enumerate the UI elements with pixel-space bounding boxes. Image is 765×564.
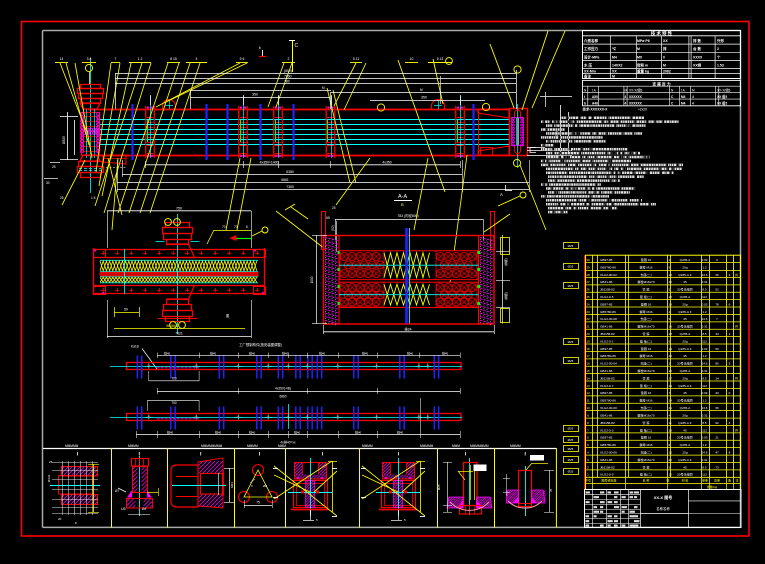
svg-text:Ø25: Ø25 xyxy=(568,447,574,451)
svg-text:18: 18 xyxy=(586,347,590,351)
svg-text:Ø325: Ø325 xyxy=(62,136,66,144)
svg-text:MMM: MMM xyxy=(278,444,286,448)
svg-text:螺栓M16x70: 螺栓M16x70 xyxy=(637,457,654,462)
svg-text:Kat.B: Kat.B xyxy=(131,345,139,349)
svg-text:20号无缝管: 20号无缝管 xyxy=(677,435,693,440)
svg-text:工作压力: 工作压力 xyxy=(584,46,598,51)
svg-text:图号或标准: 图号或标准 xyxy=(601,478,616,483)
svg-text:21: 21 xyxy=(669,406,673,410)
svg-text:管 箍: 管 箍 xyxy=(642,331,649,336)
svg-text:GB97-85: GB97-85 xyxy=(600,436,613,440)
svg-text:MMMMMMM: MMMMMMM xyxy=(470,444,489,448)
svg-text:垫 板(二): 垫 板(二) xyxy=(640,338,652,343)
svg-text:JB1158-82: JB1158-82 xyxy=(600,421,615,425)
svg-text:MPa·P6: MPa·P6 xyxy=(637,39,650,43)
svg-text:XLG2-00-04: XLG2-00-04 xyxy=(600,362,617,366)
svg-text:GB5780-86: GB5780-86 xyxy=(600,399,616,403)
svg-text:XLG2-0-5: XLG2-0-5 xyxy=(600,295,614,299)
svg-text:21: 21 xyxy=(715,436,719,440)
svg-text:Q235-A.F: Q235-A.F xyxy=(678,273,692,277)
svg-text:A50: A50 xyxy=(592,95,598,99)
svg-text:管 箍: 管 箍 xyxy=(642,287,649,292)
svg-text:JB1158-82: JB1158-82 xyxy=(600,465,615,469)
svg-text:XX 组5: XX 组5 xyxy=(717,101,727,106)
svg-text:螺栓M16x70: 螺栓M16x70 xyxy=(637,368,654,373)
svg-text:容积 m: 容积 m xyxy=(636,63,648,68)
svg-text:4: 4 xyxy=(625,102,627,106)
svg-text:Q235-A.F: Q235-A.F xyxy=(678,421,692,425)
svg-text:(650): (650) xyxy=(284,69,292,73)
svg-text:13: 13 xyxy=(669,347,673,351)
svg-text:6 13: 6 13 xyxy=(437,57,444,61)
svg-text:XLG2-00-08: XLG2-00-08 xyxy=(600,317,617,321)
svg-text:C: C xyxy=(295,43,299,49)
svg-text:垫圈 16: 垫圈 16 xyxy=(641,390,652,395)
svg-text:Ø25: Ø25 xyxy=(568,340,574,344)
svg-text:70: 70 xyxy=(222,225,226,229)
svg-text:GB41-86: GB41-86 xyxy=(600,458,613,462)
svg-text:Ø25: Ø25 xyxy=(568,265,574,269)
svg-text:25: 25 xyxy=(332,206,336,210)
svg-text:支座(二): 支座(二) xyxy=(640,316,651,321)
svg-text:24.6: 24.6 xyxy=(702,273,708,277)
svg-text:XX·X/组5: XX·X/组5 xyxy=(717,88,731,93)
svg-text:17: 17 xyxy=(586,354,590,358)
svg-text:支座(二): 支座(二) xyxy=(640,405,651,410)
svg-text:螺栓M16x70: 螺栓M16x70 xyxy=(637,279,654,284)
svg-text:M: M xyxy=(612,75,615,79)
svg-text:45: 45 xyxy=(683,428,687,432)
svg-text:MMM: MMM xyxy=(452,444,460,448)
svg-text:78: 78 xyxy=(715,302,719,306)
svg-text:件号: 件号 xyxy=(585,478,591,483)
svg-text:(排距): (排距) xyxy=(503,258,508,266)
svg-text:0.31: 0.31 xyxy=(702,369,708,373)
svg-text:Q235-A.F: Q235-A.F xyxy=(678,347,692,351)
svg-text:8.5: 8.5 xyxy=(702,376,707,380)
svg-text:JB1158-82: JB1158-82 xyxy=(600,288,615,292)
svg-text:GB5780-86: GB5780-86 xyxy=(600,310,616,314)
svg-text:M: M xyxy=(420,88,423,92)
svg-text:垫圈 16: 垫圈 16 xyxy=(641,435,652,440)
svg-text:1.2: 1.2 xyxy=(702,399,707,403)
svg-text:26: 26 xyxy=(715,273,719,277)
svg-text:垫圈 16: 垫圈 16 xyxy=(641,257,652,262)
svg-text:单重: 单重 xyxy=(702,478,708,483)
svg-text:112: 112 xyxy=(702,428,707,432)
svg-text:XX 组5: XX 组5 xyxy=(717,94,727,99)
svg-text:M4: M4 xyxy=(612,55,617,59)
svg-text:外形: 外形 xyxy=(717,38,725,43)
svg-text:10: 10 xyxy=(410,57,414,61)
svg-text:21: 21 xyxy=(586,325,590,329)
svg-text:Q235-A: Q235-A xyxy=(680,295,692,299)
svg-text:24: 24 xyxy=(586,302,590,306)
svg-text:MMMM: MMMM xyxy=(362,444,373,448)
svg-text:0.31: 0.31 xyxy=(702,458,708,462)
svg-text:垫圈 16: 垫圈 16 xyxy=(641,301,652,306)
svg-text:22: 22 xyxy=(669,458,673,462)
svg-text:M: M xyxy=(692,89,695,93)
svg-text:XXXXXX: XXXXXX xyxy=(629,95,643,99)
svg-text:Ø25: Ø25 xyxy=(568,458,574,462)
svg-text:XLG2-00-06: XLG2-00-06 xyxy=(600,450,617,454)
svg-text:XLG2-00-00: XLG2-00-00 xyxy=(600,406,617,410)
svg-text:20g: 20g xyxy=(682,302,687,306)
svg-text:1.2: 1.2 xyxy=(702,310,707,314)
svg-text:MMMMMMMM: MMMMMMMM xyxy=(201,444,223,448)
svg-text:350: 350 xyxy=(421,96,427,100)
svg-text:24.6: 24.6 xyxy=(702,362,708,366)
svg-text:15: 15 xyxy=(669,450,673,454)
svg-text:1: 1 xyxy=(669,436,671,440)
svg-text:个: 个 xyxy=(716,54,721,59)
svg-text:112: 112 xyxy=(702,339,707,343)
svg-text:XLG2-0-9: XLG2-0-9 xyxy=(600,473,614,477)
svg-text:10: 10 xyxy=(586,406,590,410)
svg-text:支座(二): 支座(二) xyxy=(640,272,651,277)
svg-text:7: 7 xyxy=(115,57,117,61)
svg-text:45: 45 xyxy=(683,465,687,469)
svg-text:9 6: 9 6 xyxy=(240,57,245,61)
svg-text:750: 750 xyxy=(176,206,182,210)
svg-text:数: 数 xyxy=(666,478,669,483)
svg-text:11: 11 xyxy=(586,399,589,403)
svg-text:8 15: 8 15 xyxy=(170,57,177,61)
svg-text:垫 板(二): 垫 板(二) xyxy=(640,427,652,432)
svg-text:15: 15 xyxy=(586,369,590,373)
svg-text:螺母 M16: 螺母 M16 xyxy=(639,398,652,403)
svg-text:1 2: 1 2 xyxy=(138,57,143,61)
svg-text:20号无缝管: 20号无缝管 xyxy=(677,361,693,366)
svg-text:10: 10 xyxy=(669,369,673,373)
svg-text:23: 23 xyxy=(669,332,673,336)
svg-text:排24: 排24 xyxy=(404,326,411,331)
svg-text:M4: M4 xyxy=(681,95,686,99)
svg-text:MMMMM: MMMMM xyxy=(65,444,79,448)
svg-text:4: 4 xyxy=(692,95,694,99)
svg-text:GB41-86: GB41-86 xyxy=(600,413,613,417)
svg-text:13: 13 xyxy=(586,384,590,388)
svg-text:3 8: 3 8 xyxy=(87,57,92,61)
svg-text:16: 16 xyxy=(586,362,590,366)
svg-text:GB5780-86: GB5780-86 xyxy=(600,354,616,358)
svg-text:名称名称: 名称名称 xyxy=(656,506,670,511)
svg-text:35: 35 xyxy=(549,488,553,492)
svg-text:112: 112 xyxy=(702,384,707,388)
svg-text:0.31: 0.31 xyxy=(702,280,708,284)
svg-text:0.03: 0.03 xyxy=(702,436,708,440)
svg-text:管 箍: 管 箍 xyxy=(642,464,649,469)
svg-text:15: 15 xyxy=(669,273,673,277)
svg-text:23: 23 xyxy=(586,310,590,314)
svg-text:6: 6 xyxy=(669,339,671,343)
svg-text:7: 7 xyxy=(669,391,671,395)
svg-text:8: 8 xyxy=(669,443,671,447)
svg-text:A-A: A-A xyxy=(398,194,408,200)
svg-text:12: 12 xyxy=(669,295,673,299)
svg-text:螺母 M16: 螺母 M16 xyxy=(639,353,652,358)
svg-text:4: 4 xyxy=(625,95,627,99)
svg-text:1: 1 xyxy=(669,258,671,262)
svg-text:Ø25: Ø25 xyxy=(437,484,441,490)
svg-text:排: 排 xyxy=(663,46,667,51)
svg-text:U5: U5 xyxy=(121,507,126,511)
svg-text:14XX2: 14XX2 xyxy=(612,64,623,68)
svg-text:1000: 1000 xyxy=(310,276,314,283)
svg-text:0.31: 0.31 xyxy=(702,325,708,329)
svg-text:MMMM: MMMM xyxy=(510,444,521,448)
svg-text:4: 4 xyxy=(196,57,198,61)
svg-text:b: b xyxy=(259,46,261,50)
svg-text:66: 66 xyxy=(715,406,719,410)
svg-text:XXXXXX: XXXXXX xyxy=(629,102,643,106)
svg-text:GB5780-86: GB5780-86 xyxy=(600,443,616,447)
svg-text:XX排: XX排 xyxy=(693,63,702,68)
svg-text:45: 45 xyxy=(683,280,687,284)
svg-text:4x350: 4x350 xyxy=(382,161,391,165)
svg-text:1.2: 1.2 xyxy=(702,443,707,447)
svg-text:共: 共 xyxy=(735,375,738,380)
svg-text:XLG2-0-3: XLG2-0-3 xyxy=(600,428,614,432)
svg-text:70: 70 xyxy=(234,225,238,229)
svg-text:20号无缝管: 20号无缝管 xyxy=(677,398,693,403)
svg-text:8.5: 8.5 xyxy=(702,465,707,469)
svg-text:783 (内径800): 783 (内径800) xyxy=(397,213,418,218)
svg-text:重量 kg: 重量 kg xyxy=(637,69,649,74)
svg-text:支座(二): 支座(二) xyxy=(640,361,651,366)
svg-text:排40: 排40 xyxy=(282,350,289,355)
svg-text:Q235-A.F: Q235-A.F xyxy=(678,384,692,388)
svg-text:780: 780 xyxy=(284,79,290,83)
svg-text:Ø25: Ø25 xyxy=(568,244,574,248)
svg-text:XX: XX xyxy=(663,39,668,43)
svg-text:水 压: 水 压 xyxy=(583,63,592,68)
svg-text:73: 73 xyxy=(715,465,719,469)
svg-text:工厂预制构件(按安装图调整): 工厂预制构件(按安装图调整) xyxy=(239,342,282,347)
svg-text:Q235-A: Q235-A xyxy=(680,258,692,262)
svg-text:GB97-85: GB97-85 xyxy=(600,258,613,262)
svg-text:7360: 7360 xyxy=(286,185,294,189)
svg-text:垫 板(二): 垫 板(二) xyxy=(640,472,652,477)
svg-text:XLG2-0-1: XLG2-0-1 xyxy=(600,339,614,343)
svg-text:MMMM: MMMM xyxy=(247,444,258,448)
svg-text:Ø25: Ø25 xyxy=(568,438,574,442)
svg-text:XLG2-00-02: XLG2-00-02 xyxy=(600,273,617,277)
svg-text:7621: 7621 xyxy=(175,332,183,336)
svg-text:47: 47 xyxy=(715,450,719,454)
svg-text:0.31: 0.31 xyxy=(702,413,708,417)
svg-text:14: 14 xyxy=(60,57,64,61)
svg-text:16: 16 xyxy=(669,325,673,329)
svg-text:名 称: 名 称 xyxy=(643,478,650,483)
svg-text:Ø25: Ø25 xyxy=(568,470,574,474)
svg-text:M: M xyxy=(637,47,640,51)
svg-text:排40: 排40 xyxy=(249,350,256,355)
svg-text:螺母 M16: 螺母 M16 xyxy=(639,309,652,314)
svg-text:台 数: 台 数 xyxy=(693,46,701,51)
svg-text:Q235-A.F: Q235-A.F xyxy=(678,310,692,314)
svg-text:59: 59 xyxy=(715,347,719,351)
svg-text:20号无缝管: 20号无缝管 xyxy=(677,472,693,477)
svg-text:垫圈 16: 垫圈 16 xyxy=(641,346,652,351)
svg-text:24.6: 24.6 xyxy=(702,406,708,410)
svg-text:M: M xyxy=(625,89,628,93)
svg-text:XXXX: XXXX xyxy=(693,55,703,59)
svg-text:2082: 2082 xyxy=(663,70,671,74)
svg-text:排40: 排40 xyxy=(355,429,362,434)
svg-text:20g: 20g xyxy=(682,265,687,269)
svg-text:20g: 20g xyxy=(682,339,687,343)
svg-text:重量(kg): 重量(kg) xyxy=(707,485,717,489)
svg-text:垫 板(二): 垫 板(二) xyxy=(640,294,652,299)
svg-text:28: 28 xyxy=(586,273,590,277)
svg-text:MMMM: MMMM xyxy=(128,444,139,448)
svg-text:XLG2-0-7: XLG2-0-7 xyxy=(600,384,614,388)
svg-text:GB97-85: GB97-85 xyxy=(600,347,613,351)
svg-text:14: 14 xyxy=(586,376,590,380)
svg-text:M64: M64 xyxy=(230,482,234,488)
svg-text:排40: 排40 xyxy=(362,350,369,355)
svg-text:19: 19 xyxy=(586,339,590,343)
svg-text:8: 8 xyxy=(669,265,671,269)
svg-text:排 数: 排 数 xyxy=(693,38,701,43)
svg-text:5: 5 xyxy=(669,465,671,469)
svg-text:排40: 排40 xyxy=(164,350,171,355)
svg-text:65: 65 xyxy=(326,216,330,220)
svg-text:2: 2 xyxy=(717,47,719,51)
svg-text:GB5780-86: GB5780-86 xyxy=(600,265,616,269)
svg-text:75: 75 xyxy=(256,501,260,505)
svg-text:XX: XX xyxy=(612,70,617,74)
svg-text:4x350(-4B): 4x350(-4B) xyxy=(275,387,291,391)
svg-text:40: 40 xyxy=(715,391,719,395)
svg-text:M: M xyxy=(663,64,666,68)
svg-text:M4: M4 xyxy=(681,102,686,106)
svg-text:17: 17 xyxy=(669,376,673,380)
svg-text:6861: 6861 xyxy=(281,178,289,182)
svg-text:共: 共 xyxy=(735,272,738,277)
svg-text:排40: 排40 xyxy=(407,350,414,355)
svg-text:XX-X 图号: XX-X 图号 xyxy=(654,494,672,500)
svg-text:26: 26 xyxy=(586,288,590,292)
svg-text:(52): (52) xyxy=(331,225,335,231)
svg-text:≈2x20: ≈2x20 xyxy=(638,108,647,112)
svg-text:管 箍: 管 箍 xyxy=(642,375,649,380)
svg-text:0.03: 0.03 xyxy=(702,302,708,306)
svg-text:20: 20 xyxy=(58,517,62,521)
svg-text:30: 30 xyxy=(586,258,590,262)
svg-text:螺栓M16x70: 螺栓M16x70 xyxy=(637,324,654,329)
svg-text:20g: 20g xyxy=(682,450,687,454)
svg-text:4: 4 xyxy=(692,102,694,106)
svg-text:3: 3 xyxy=(669,362,671,366)
svg-text:11: 11 xyxy=(669,421,672,425)
svg-text:18: 18 xyxy=(669,428,673,432)
svg-text:GB41-86: GB41-86 xyxy=(600,369,613,373)
svg-text:MMMMM: MMMMM xyxy=(420,444,434,448)
svg-text:45: 45 xyxy=(683,391,687,395)
svg-text:9: 9 xyxy=(669,317,671,321)
svg-text:GB97-85: GB97-85 xyxy=(600,391,613,395)
svg-text:排40: 排40 xyxy=(210,350,217,355)
svg-text:24.6: 24.6 xyxy=(702,317,708,321)
svg-text:图: 图 xyxy=(226,314,229,318)
svg-text:52: 52 xyxy=(715,288,719,292)
svg-text:Q235-A: Q235-A xyxy=(680,443,692,447)
svg-text:1.2: 1.2 xyxy=(702,354,707,358)
svg-text:设计·MPa: 设计·MPa xyxy=(584,54,599,59)
svg-text:备注: 备注 xyxy=(583,74,592,79)
svg-text:30: 30 xyxy=(46,181,50,185)
svg-text:5808±5: 5808±5 xyxy=(166,324,177,328)
svg-text:GB41-86: GB41-86 xyxy=(600,325,613,329)
svg-text:MX: MX xyxy=(637,55,643,59)
svg-text:技术·XXXXXX-X: 技术·XXXXXX-X xyxy=(583,107,609,112)
svg-text:700: 700 xyxy=(171,401,177,405)
svg-text:Ø7: Ø7 xyxy=(115,489,119,493)
svg-text:25: 25 xyxy=(52,165,56,169)
svg-text:排40: 排40 xyxy=(397,429,404,434)
svg-text:螺母 M16: 螺母 M16 xyxy=(639,264,652,269)
svg-text:92: 92 xyxy=(715,421,719,425)
svg-text:1 8: 1 8 xyxy=(91,196,96,200)
svg-text:排40: 排40 xyxy=(215,429,222,434)
svg-text:25: 25 xyxy=(49,460,53,464)
svg-text:25: 25 xyxy=(60,196,64,200)
svg-text:350: 350 xyxy=(252,93,258,97)
svg-text:8.5: 8.5 xyxy=(702,421,707,425)
svg-text:A: A xyxy=(500,192,503,197)
svg-text:1.53: 1.53 xyxy=(717,64,724,68)
svg-text:b: b xyxy=(584,102,586,106)
svg-text:Ø25: Ø25 xyxy=(568,284,574,288)
svg-text:5: 5 xyxy=(669,288,671,292)
svg-text:材 料: 材 料 xyxy=(682,478,689,483)
svg-text:Q235-A: Q235-A xyxy=(680,332,692,336)
svg-text:(排距): (排距) xyxy=(503,292,508,300)
svg-text:Ø8: Ø8 xyxy=(263,484,267,488)
svg-text:4x350=1400: 4x350=1400 xyxy=(260,161,279,165)
svg-text:1.2: 1.2 xyxy=(702,265,707,269)
svg-text:12: 12 xyxy=(586,391,590,395)
svg-text:24: 24 xyxy=(669,384,673,388)
svg-text:20: 20 xyxy=(669,354,673,358)
svg-text:GB97-85: GB97-85 xyxy=(600,302,613,306)
svg-text:29: 29 xyxy=(586,265,590,269)
svg-text:33: 33 xyxy=(715,332,719,336)
svg-text:8.5: 8.5 xyxy=(702,332,707,336)
svg-text:20号无缝管: 20号无缝管 xyxy=(677,324,693,329)
svg-text:GB41-86: GB41-86 xyxy=(600,280,613,284)
svg-text:22: 22 xyxy=(669,280,673,284)
svg-text:5 11: 5 11 xyxy=(353,57,359,61)
svg-text:共: 共 xyxy=(735,427,738,432)
svg-text:27: 27 xyxy=(586,280,590,284)
svg-text:20g: 20g xyxy=(682,376,687,380)
svg-text:Ø232: Ø232 xyxy=(47,474,51,482)
svg-text:6860: 6860 xyxy=(279,395,286,399)
svg-text:垫 板(二): 垫 板(二) xyxy=(640,383,652,388)
svg-text:Q235-A.F: Q235-A.F xyxy=(678,458,692,462)
svg-text:14: 14 xyxy=(669,399,673,403)
svg-text:50: 50 xyxy=(124,308,128,312)
svg-text:JB1158-82: JB1158-82 xyxy=(600,376,615,380)
svg-text:45: 45 xyxy=(683,317,687,321)
svg-text:排40: 排40 xyxy=(249,429,256,434)
svg-text:支座(二): 支座(二) xyxy=(640,449,651,454)
svg-text:JB1158-82: JB1158-82 xyxy=(600,332,615,336)
